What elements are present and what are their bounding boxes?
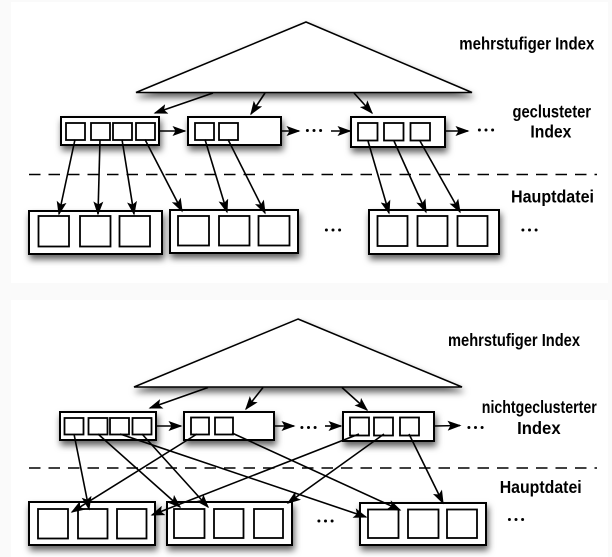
svg-text:Hauptdatei: Hauptdatei: [511, 186, 594, 206]
svg-text:mehrstufiger Index: mehrstufiger Index: [448, 330, 580, 350]
svg-text:Index: Index: [517, 418, 561, 438]
svg-text:Hauptdatei: Hauptdatei: [500, 477, 582, 497]
svg-text:mehrstufiger Index: mehrstufiger Index: [459, 34, 594, 54]
svg-text:geclusteter: geclusteter: [513, 102, 592, 122]
svg-text:Index: Index: [530, 122, 571, 142]
svg-text:nichtgeclusterter: nichtgeclusterter: [482, 397, 597, 417]
